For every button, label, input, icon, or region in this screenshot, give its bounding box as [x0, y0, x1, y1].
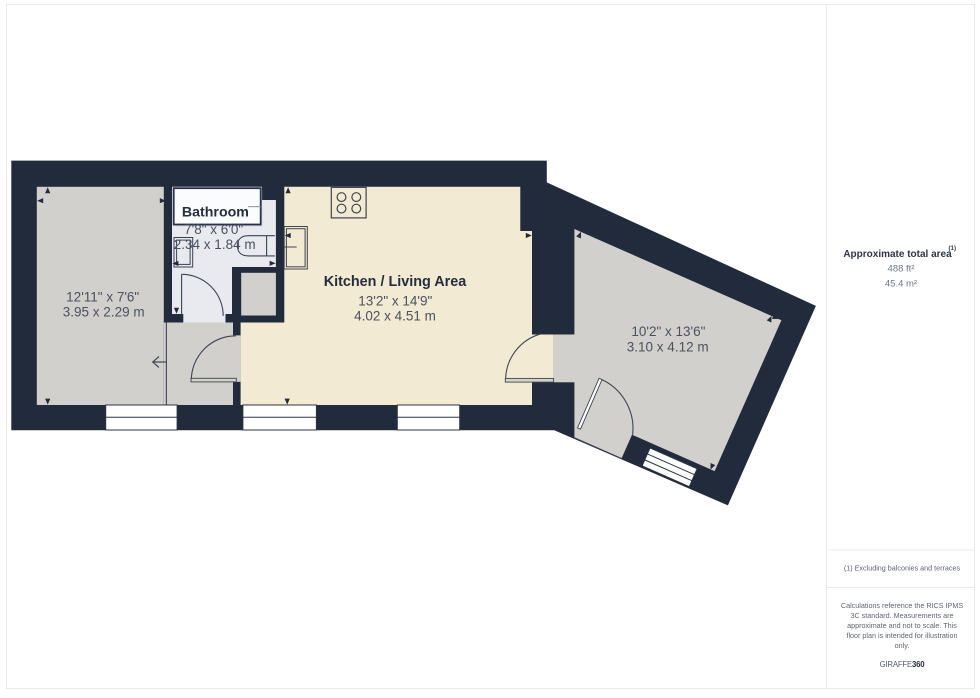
svg-text:Kitchen / Living Area: Kitchen / Living Area: [324, 274, 468, 290]
svg-text:12'11" x 7'6": 12'11" x 7'6": [66, 290, 139, 305]
svg-text:Calculations reference the RIC: Calculations reference the RICS IPMS: [841, 601, 963, 610]
svg-text:4.02 x 4.51 m: 4.02 x 4.51 m: [354, 309, 436, 324]
svg-text:488 ft²: 488 ft²: [888, 264, 915, 275]
svg-text:10'2" x 13'6": 10'2" x 13'6": [631, 324, 705, 339]
svg-text:floor plan is intended for ill: floor plan is intended for illustration: [846, 631, 957, 640]
svg-text:only.: only.: [895, 641, 910, 650]
svg-text:Approximate total area: Approximate total area: [843, 249, 952, 260]
svg-text:2.34 x 1.84 m: 2.34 x 1.84 m: [174, 237, 256, 252]
svg-text:(1) Excluding balconies and te: (1) Excluding balconies and terraces: [844, 563, 961, 572]
svg-text:3.10 x 4.12 m: 3.10 x 4.12 m: [627, 340, 709, 355]
svg-text:(1): (1): [949, 245, 957, 252]
svg-text:7'8" x 6'0": 7'8" x 6'0": [184, 222, 243, 237]
svg-text:Bathroom: Bathroom: [182, 204, 249, 220]
svg-text:3.95 x 2.29 m: 3.95 x 2.29 m: [63, 304, 145, 319]
svg-text:approximate and not to scale.: approximate and not to scale. This: [847, 621, 957, 630]
svg-text:45.4 m²: 45.4 m²: [885, 279, 917, 290]
svg-text:GIRAFFE360: GIRAFFE360: [880, 660, 926, 669]
svg-text:3C standard. Measurements are: 3C standard. Measurements are: [850, 611, 953, 620]
svg-text:13'2" x 14'9": 13'2" x 14'9": [358, 293, 432, 308]
